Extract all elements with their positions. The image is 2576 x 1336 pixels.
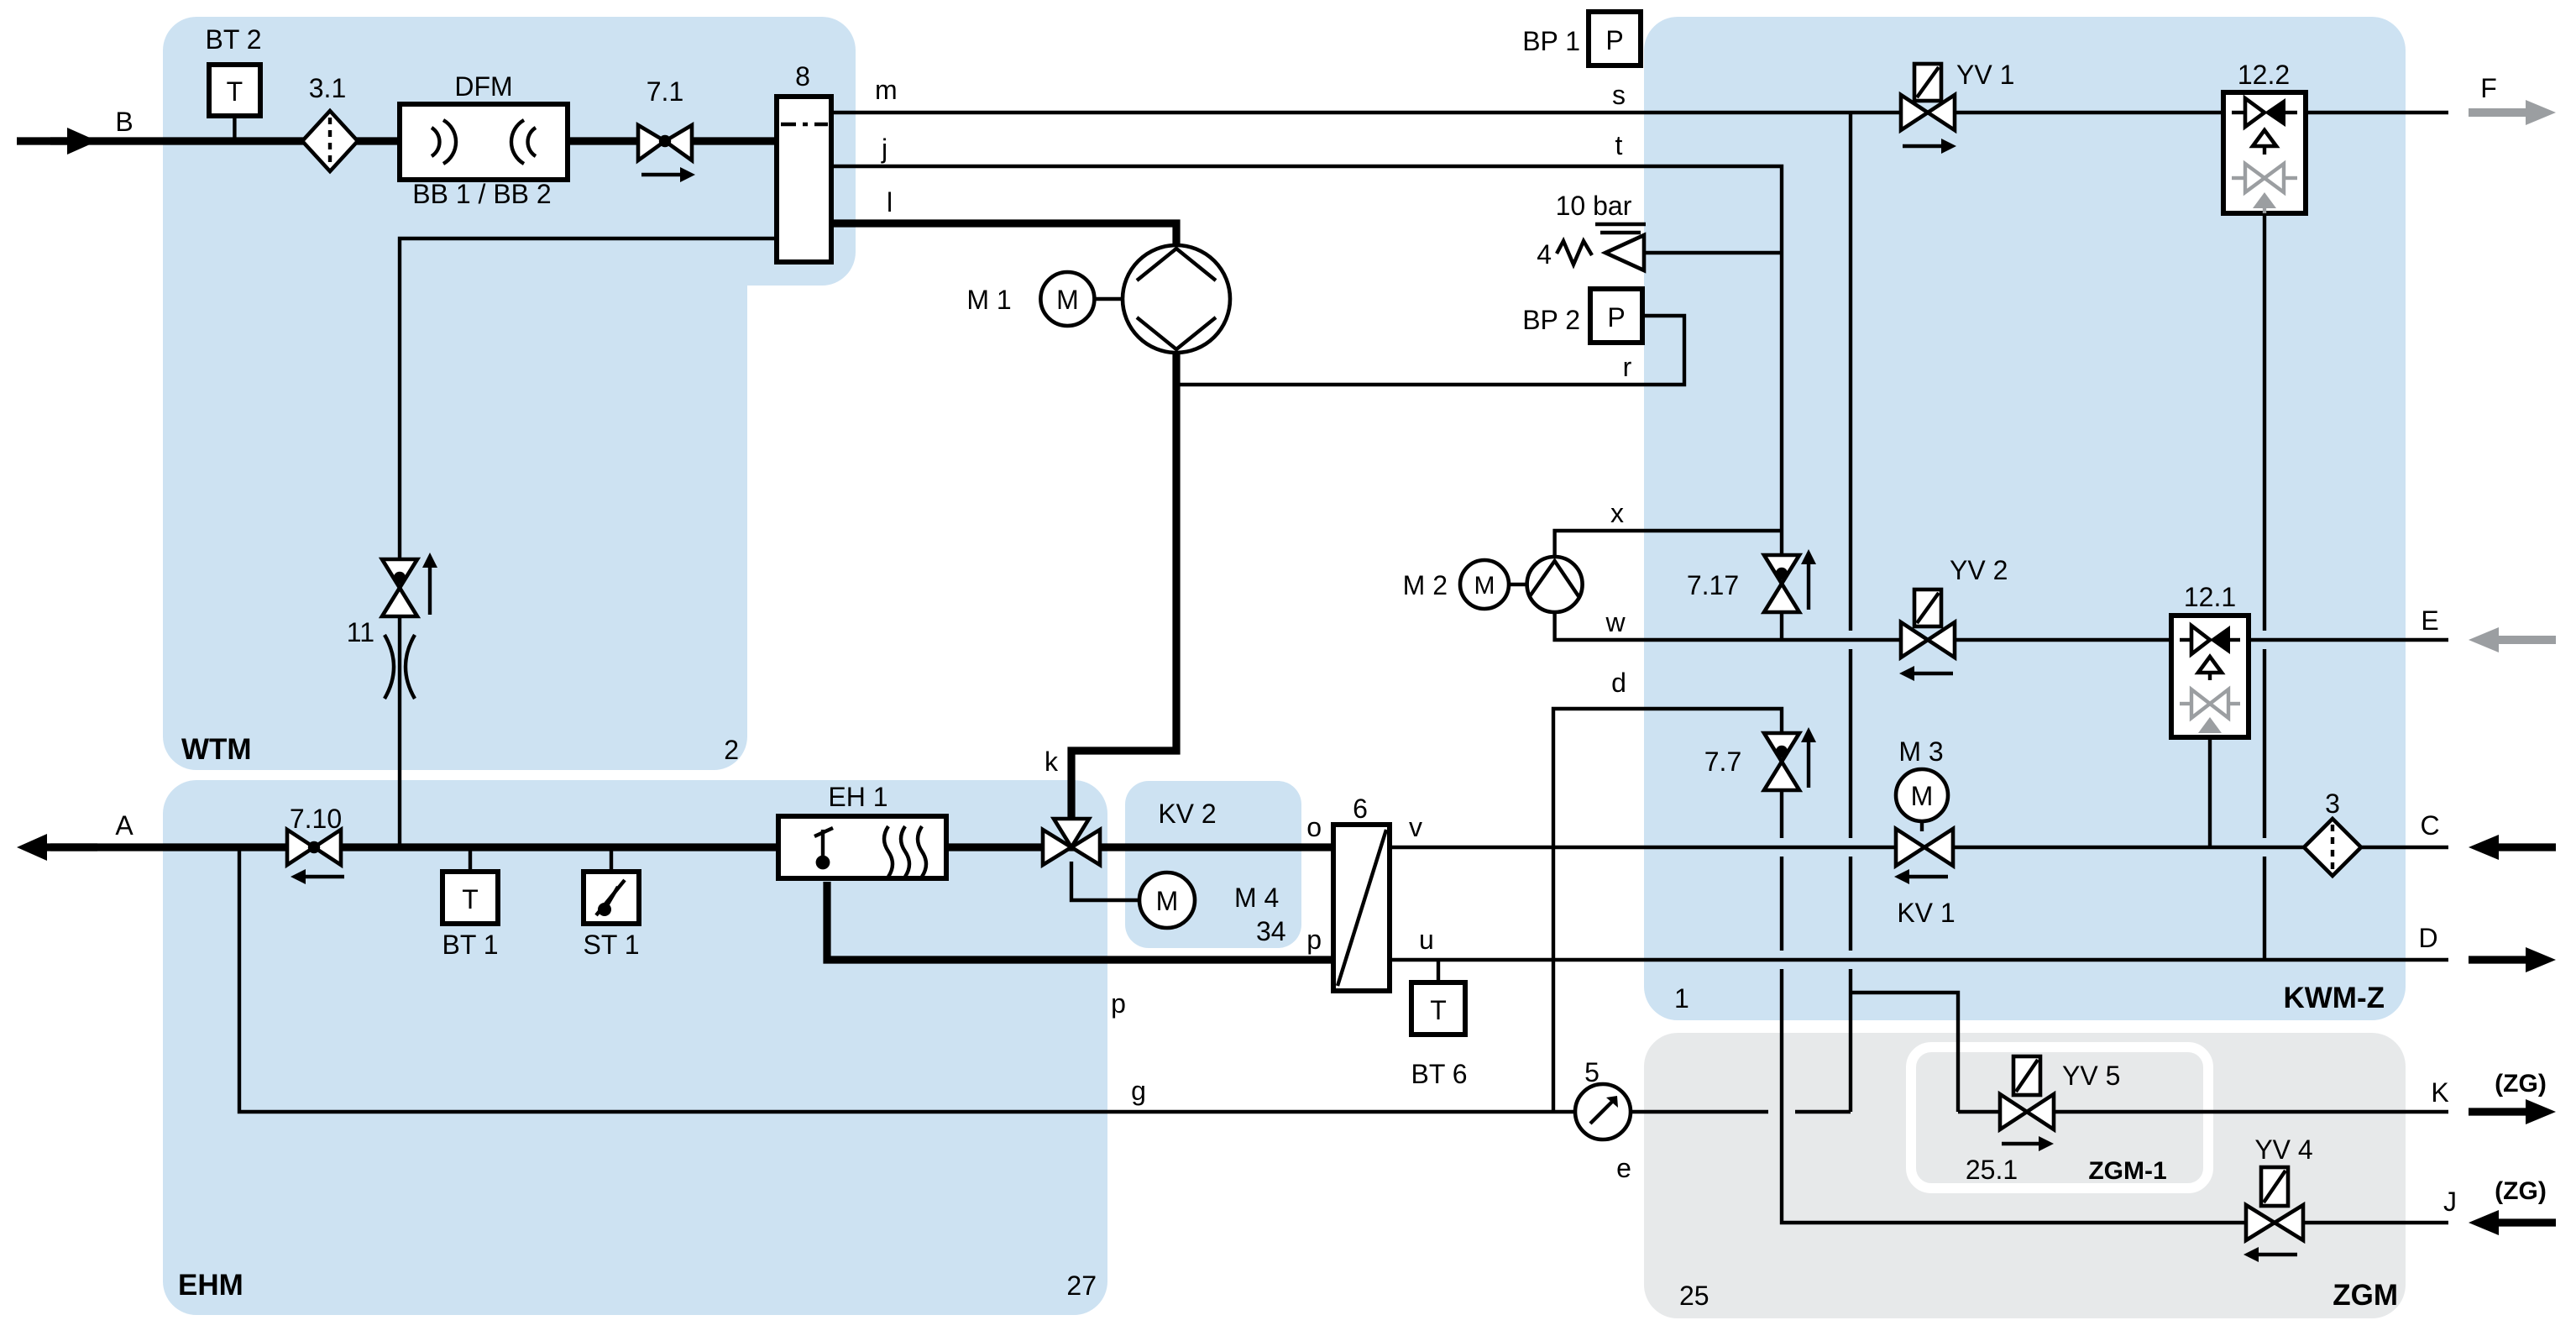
label-valve71: 7.1 [647,76,683,107]
label-m2: M 2 [1403,570,1448,600]
bp2-letter: P [1607,302,1625,333]
label-line-e: e [1616,1153,1631,1183]
label-line-r: r [1623,352,1632,382]
label-zg-k: (ZG) [2495,1070,2547,1098]
label-line-o: o [1306,812,1322,842]
label-bt2: BT 2 [206,24,262,55]
label-line-v: v [1409,812,1422,842]
label-zg-j: (ZG) [2495,1177,2547,1205]
label-10bar: 10 bar [1556,191,1632,221]
checkvalve-12.2 [2223,92,2306,213]
gauge-5 [1575,1084,1631,1140]
checkvalve-12.1 [2171,616,2249,737]
arrow-j-in [2469,1210,2556,1235]
m4-letter: M [1156,886,1179,916]
label-yv5: YV 5 [2062,1061,2120,1091]
label-line-j: j [881,134,887,164]
label-line-g: g [1131,1076,1146,1106]
label-line-s: s [1612,80,1626,110]
pump-m2: M [1460,557,1583,612]
label-module-wtm: WTM [181,733,252,766]
label-line-m: m [875,75,898,105]
label-line-u: u [1419,925,1434,955]
label-port-a: A [115,810,134,841]
label-line-k: k [1045,747,1059,777]
arrow-a-out [17,834,97,861]
distributor-8 [777,97,831,262]
label-module-zgm-number: 25 [1679,1281,1709,1311]
label-module-zgm: ZGM [2333,1279,2398,1312]
label-gauge5: 5 [1584,1057,1600,1087]
label-hx6: 6 [1353,794,1368,824]
label-module-zgm1: ZGM-1 [2088,1157,2166,1185]
heatexchanger-6 [1333,825,1390,991]
sensor-bp1: P [1589,12,1641,65]
label-st1: ST 1 [584,930,640,960]
label-port-e: E [2421,605,2438,636]
label-line-p-upper: p [1306,925,1322,955]
sensor-bt6: T [1411,960,1465,1035]
label-kv1: KV 1 [1897,898,1955,928]
label-port-f: F [2480,73,2497,103]
label-kv2: KV 2 [1158,799,1216,829]
label-valve4: 4 [1537,239,1552,270]
label-filter3: 3 [2325,789,2340,819]
label-module-ehm: EHM [178,1269,243,1302]
label-line-x: x [1610,498,1624,528]
label-dist8: 8 [795,61,810,92]
piping-diagram: T M P [0,0,2576,1336]
m1-letter: M [1056,285,1079,315]
label-valve11: 11 [347,617,374,647]
label-yv4: YV 4 [2254,1134,2312,1165]
bt2-letter: T [227,76,243,107]
label-port-j: J [2443,1187,2457,1217]
label-yv1: YV 1 [1956,60,2014,90]
label-bp2: BP 2 [1522,305,1580,335]
label-module-kwmz-number: 1 [1674,983,1689,1014]
label-module-zgm1-number: 25.1 [1966,1155,2018,1185]
m2-letter: M [1474,572,1495,600]
bt1-letter: T [462,884,479,914]
label-m1: M 1 [966,285,1011,315]
label-module-ehm-number: 27 [1066,1271,1097,1301]
label-port-c: C [2420,810,2439,841]
label-eh1: EH 1 [828,782,887,812]
arrow-k-out [2469,1099,2556,1124]
label-filter31: 3.1 [309,73,346,103]
label-bt6: BT 6 [1411,1059,1468,1089]
label-line-p-lower: p [1111,988,1126,1019]
label-line-t: t [1615,130,1623,160]
arrow-e-in [2469,627,2556,652]
label-bb12: BB 1 / BB 2 [412,179,551,209]
label-port-k: K [2431,1077,2448,1108]
arrow-c-in [2469,835,2556,860]
label-valve77: 7.7 [1704,747,1741,777]
label-port-b: B [115,107,133,137]
pump-m1: M [1040,245,1230,353]
label-line-d: d [1611,668,1626,698]
arrow-f-out [2469,100,2556,125]
bt6-letter: T [1430,995,1447,1025]
label-m4-number: 34 [1256,916,1286,946]
label-bp1: BP 1 [1522,26,1580,56]
label-check121: 12.1 [2184,582,2236,612]
label-module-kwmz: KWM-Z [2283,982,2385,1014]
label-port-d: D [2418,923,2437,953]
label-line-w: w [1605,607,1626,637]
label-m3: M 3 [1898,736,1943,767]
arrow-d-out [2469,947,2556,972]
label-bt1: BT 1 [442,930,499,960]
label-module-wtm-number: 2 [724,735,739,765]
m3-letter: M [1911,781,1934,811]
label-valve710: 7.10 [290,804,342,834]
label-dfm: DFM [454,71,512,102]
sensor-bp2: P [1590,289,1642,343]
heater-eh1 [778,816,946,878]
arrow-b-in [17,128,97,155]
valve-4-relief [1557,224,1646,270]
label-line-l: l [887,187,893,217]
region-ehm [163,780,1107,1315]
label-m4: M 4 [1234,883,1279,913]
bp1-letter: P [1605,25,1623,55]
label-yv2: YV 2 [1950,555,2008,585]
flowmeter-dfm [400,104,568,180]
label-valve717: 7.17 [1687,570,1739,600]
label-check122: 12.2 [2238,60,2290,90]
diagram-stage: T M P [0,0,2576,1336]
